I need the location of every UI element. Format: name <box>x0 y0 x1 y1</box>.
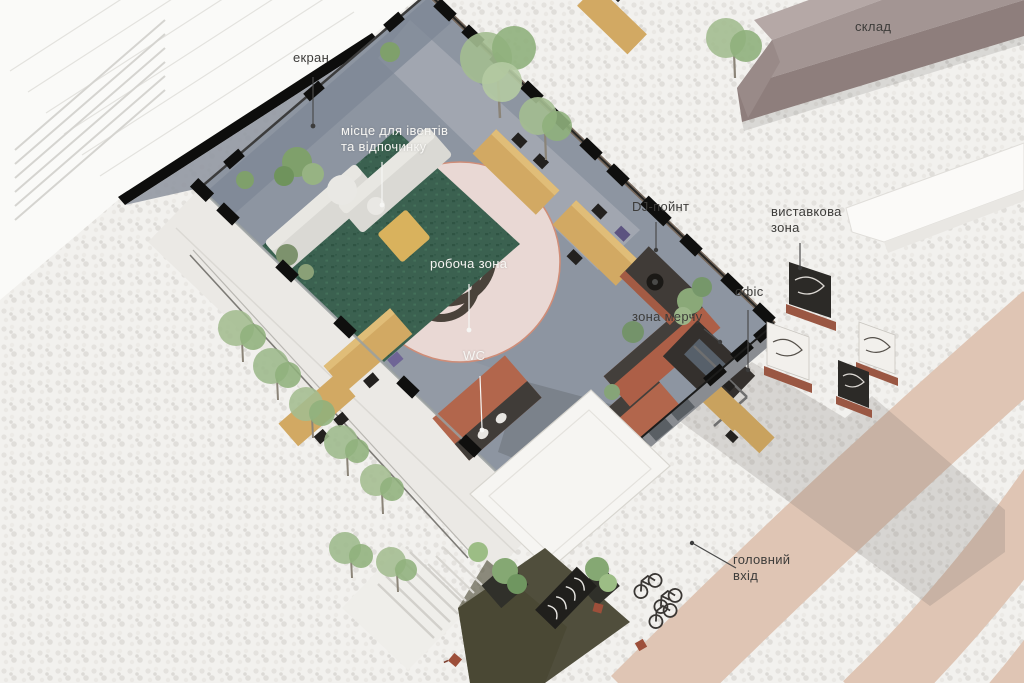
coffee-table <box>327 175 357 205</box>
scene-drawing <box>0 0 1024 683</box>
axonometric-render: екран місце для івентів та відпочинку ск… <box>0 0 1024 683</box>
round-pouf <box>298 264 314 280</box>
